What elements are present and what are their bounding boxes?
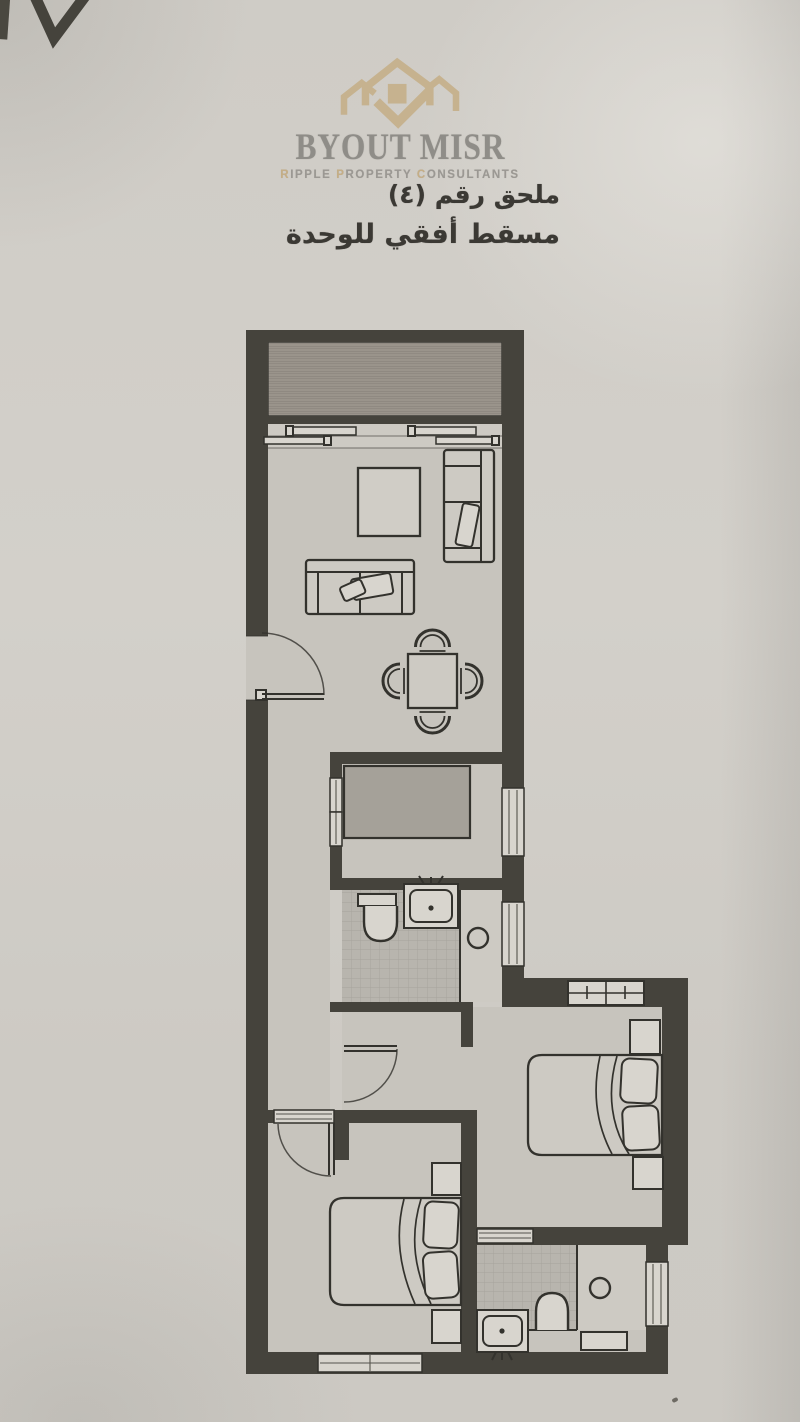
nightstand [432,1310,461,1343]
nightstand [633,1157,663,1189]
sofa-right [444,450,494,562]
bathroom2-door-opening [477,1229,533,1243]
pillow [620,1058,658,1104]
pillow [622,1105,660,1151]
bathroom1-window [502,902,524,966]
kitchen-window [502,788,524,856]
wardrobe-1 [568,981,644,1005]
kitchen-counter [344,766,470,838]
pillow [423,1201,459,1249]
pillow [422,1251,459,1299]
dining-table [408,654,457,708]
double-bed-1 [528,1055,662,1155]
area-rug [358,468,420,536]
nightstand [432,1163,461,1195]
bathroom2-window [646,1262,668,1326]
balcony-floor [268,342,502,416]
bathroom1-shower-floor [460,890,502,1002]
bathroom2-shower-floor [577,1245,646,1330]
bedroom1-door-opening [461,1047,473,1110]
hall-floor [342,1012,473,1112]
kitchen-shaft-window [330,778,342,846]
sink-1 [404,876,458,928]
toilet-2 [536,1293,568,1330]
sofa-main [306,560,414,614]
floor-plan-drawing [0,0,800,1422]
double-bed-2 [330,1198,461,1305]
kitchen [344,766,470,838]
bedroom2-window [318,1354,422,1372]
bedroom2-door-opening [274,1110,334,1123]
sink-2 [477,1310,528,1360]
bath-cabinet [581,1332,627,1350]
nightstand [630,1020,660,1054]
